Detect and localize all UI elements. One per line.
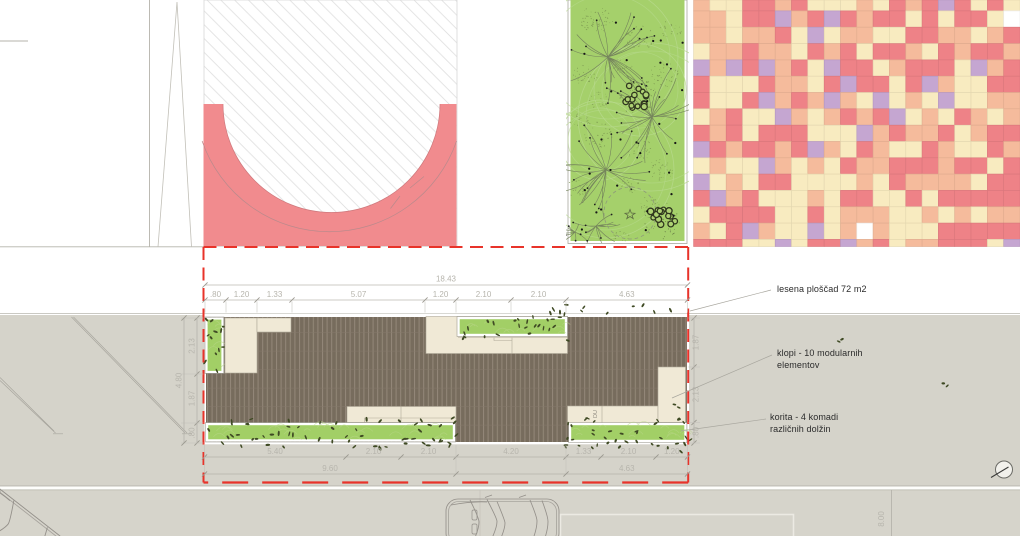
svg-text:2.10: 2.10 xyxy=(531,290,547,299)
svg-text:5.40: 5.40 xyxy=(267,447,283,456)
svg-text:9.60: 9.60 xyxy=(322,464,338,473)
svg-text:4.20: 4.20 xyxy=(503,447,519,456)
svg-text:1.87: 1.87 xyxy=(692,334,701,350)
svg-text:2.10: 2.10 xyxy=(476,290,492,299)
svg-text:klopi - 10 modularnih: klopi - 10 modularnih xyxy=(777,348,863,358)
svg-text:4.63: 4.63 xyxy=(619,464,635,473)
svg-text:korita - 4 komadi: korita - 4 komadi xyxy=(770,412,838,422)
svg-text:1.33: 1.33 xyxy=(267,290,283,299)
svg-text:2.10: 2.10 xyxy=(366,447,382,456)
svg-text:1.33: 1.33 xyxy=(576,447,592,456)
svg-text:1.20: 1.20 xyxy=(433,290,449,299)
svg-text:8.00: 8.00 xyxy=(877,511,886,527)
svg-text:1.87: 1.87 xyxy=(188,390,197,406)
svg-text:.80: .80 xyxy=(210,290,222,299)
svg-text:1.20: 1.20 xyxy=(234,290,250,299)
svg-text:.80: .80 xyxy=(188,427,197,439)
svg-text:lesena ploščad 72 m2: lesena ploščad 72 m2 xyxy=(777,284,867,294)
svg-text:elementov: elementov xyxy=(777,360,820,370)
svg-text:DU: DU xyxy=(593,410,599,418)
svg-text:4.63: 4.63 xyxy=(619,290,635,299)
svg-text:2.10: 2.10 xyxy=(421,447,437,456)
svg-text:2.13: 2.13 xyxy=(188,338,197,354)
svg-text:različnih dolžin: različnih dolžin xyxy=(770,424,831,434)
svg-text:4.80: 4.80 xyxy=(175,372,184,388)
svg-text:2.13: 2.13 xyxy=(692,386,701,402)
svg-text:5.07: 5.07 xyxy=(351,290,367,299)
svg-text:2.10: 2.10 xyxy=(621,447,637,456)
svg-text:18.43: 18.43 xyxy=(436,275,457,284)
svg-text:1.20: 1.20 xyxy=(664,447,680,456)
